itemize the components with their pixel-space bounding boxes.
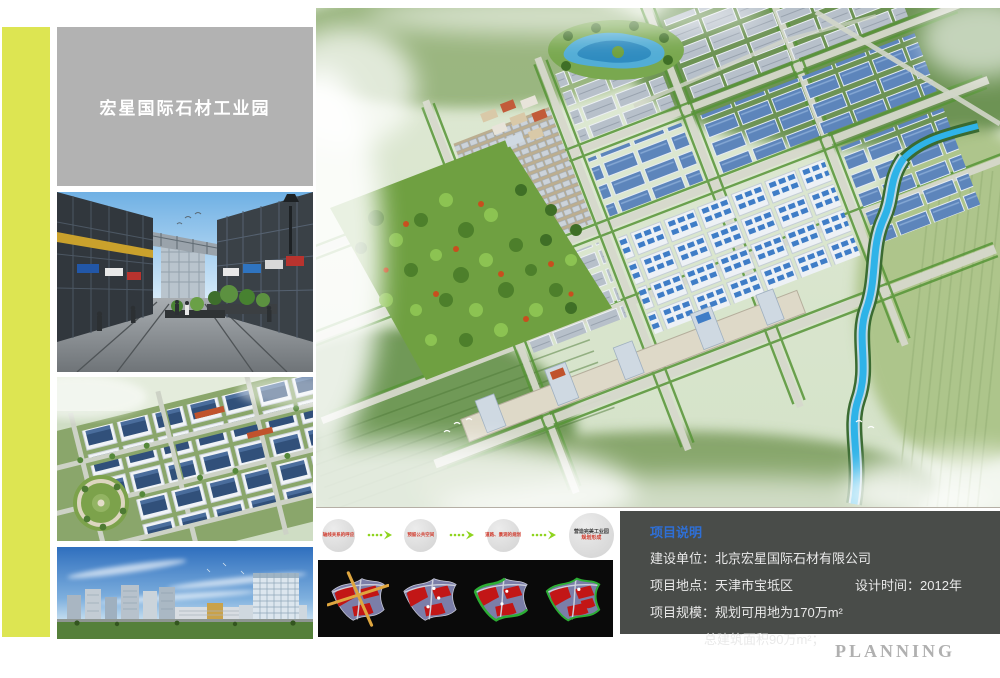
- flow-step-2: 预留公共空间: [404, 519, 437, 552]
- owner-value: 北京宏星国际石材有限公司: [715, 548, 871, 567]
- accent-stripe: [2, 27, 50, 637]
- aerial-park-illustration: [57, 377, 313, 541]
- concept-flow: 轴线关系的呼应 预留公共空间 道路、景观的规划 营造完美工业园 规划形成: [322, 512, 614, 558]
- info-box-header: 项目说明: [650, 522, 990, 541]
- info-row-owner: 建设单位： 北京宏星国际石材有限公司: [650, 548, 990, 567]
- scale-value: 规划可用地为170万m²: [715, 602, 843, 621]
- floor-area-value: 总建筑面积90万m²；: [704, 629, 825, 648]
- page-title: 宏星国际石材工业园: [100, 94, 271, 119]
- site-greenway-diagram: [470, 570, 532, 628]
- concept-diagram-panel: [318, 560, 613, 637]
- flow-step-3: 道路、景观的规划: [487, 519, 520, 552]
- dotted-arrow-right-icon: [449, 530, 475, 540]
- photo-skyline: [57, 547, 313, 639]
- info-row-location: 项目地点： 天津市宝坻区 设计时间： 2012年: [650, 575, 990, 594]
- project-title-box: 宏星国际石材工业园: [57, 27, 313, 186]
- masterplan-illustration: [316, 8, 1000, 507]
- location-label: 项目地点：: [650, 575, 715, 594]
- flow-step-1: 轴线关系的呼应: [322, 519, 355, 552]
- photo-street-view: [57, 192, 313, 372]
- flow-step-4: 营造完美工业园 规划形成: [569, 513, 614, 558]
- project-info-box: 项目说明 建设单位： 北京宏星国际石材有限公司 项目地点： 天津市宝坻区 设计时…: [620, 511, 1000, 634]
- location-value: 天津市宝坻区: [715, 575, 793, 594]
- site-axis-diagram: [327, 570, 389, 628]
- design-time-value: 2012年: [920, 575, 962, 594]
- dotted-arrow-right-icon: [531, 530, 557, 540]
- site-final-plan-diagram: [542, 570, 604, 628]
- owner-label: 建设单位：: [650, 548, 715, 567]
- photo-aerial-park: [57, 377, 313, 541]
- scale-label: 项目规模：: [650, 602, 715, 621]
- info-row-scale: 项目规模： 规划可用地为170万m²: [650, 602, 990, 621]
- street-view-illustration: [57, 192, 313, 372]
- planning-watermark: PLANNING: [835, 641, 955, 662]
- presentation-board: 宏星国际石材工业园: [0, 0, 1000, 678]
- skyline-illustration: [57, 547, 313, 639]
- dotted-arrow-right-icon: [367, 530, 393, 540]
- design-time-label: 设计时间：: [855, 575, 920, 594]
- site-nodes-diagram: [399, 570, 461, 628]
- circular-plaza: [73, 475, 129, 531]
- masterplan-rendering: [316, 8, 1000, 508]
